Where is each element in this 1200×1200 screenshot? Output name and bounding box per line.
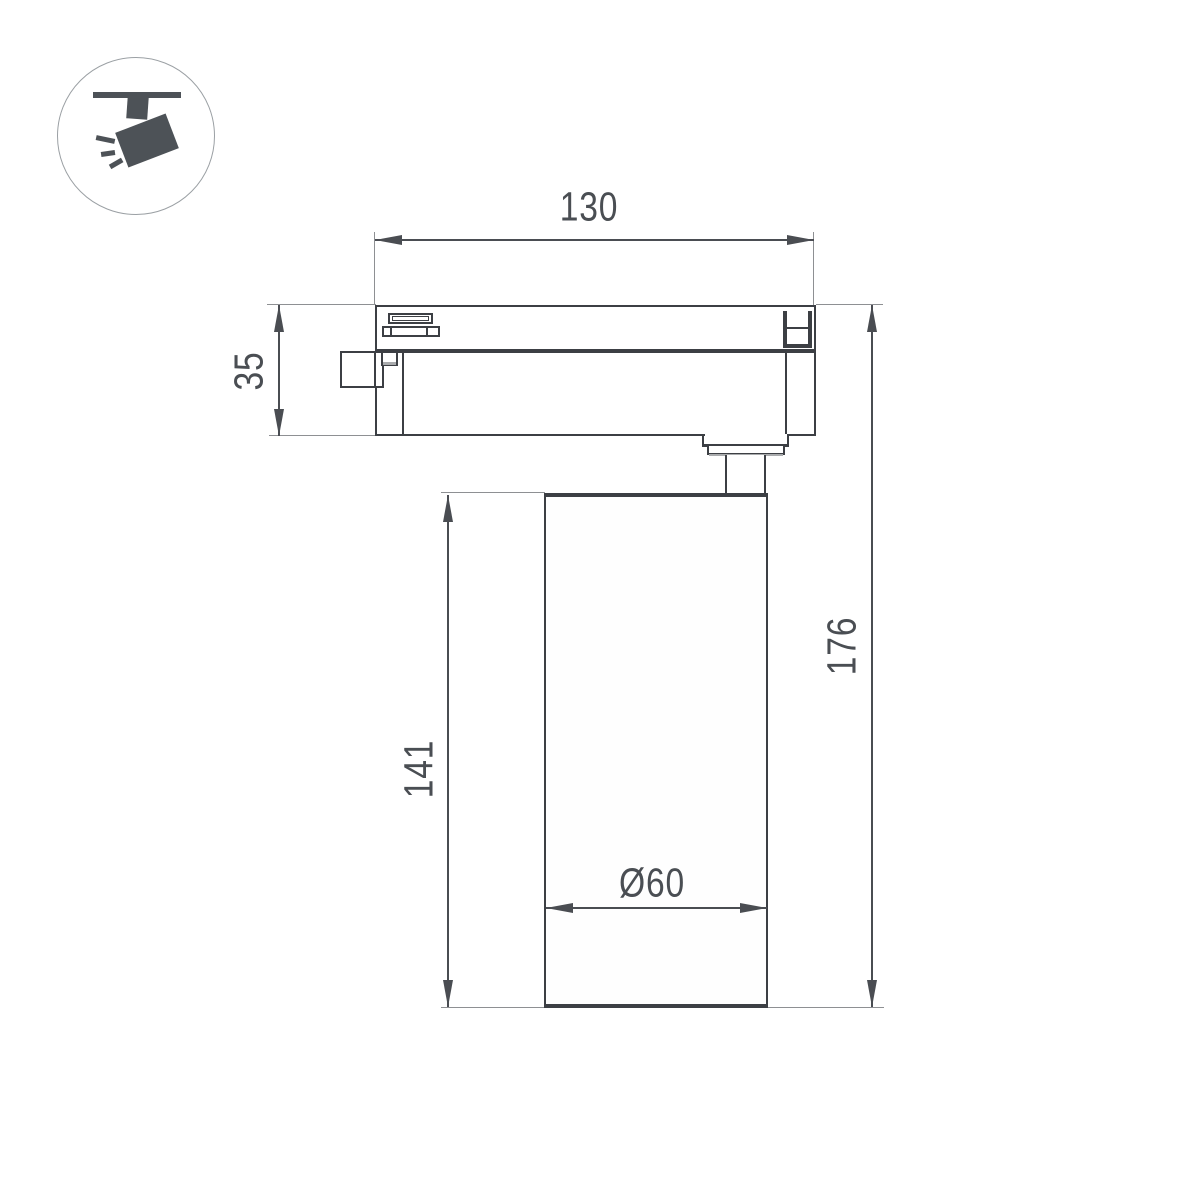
clip-middle-rung	[787, 327, 808, 329]
adapter-body-bottom-edge	[375, 434, 705, 436]
adapter-latch-box	[340, 351, 384, 388]
dim-arrowhead	[740, 903, 767, 913]
dim-label-total-height: 176	[822, 617, 863, 676]
adapter-neck-stem	[725, 455, 766, 494]
dim-label-adapter-width: 130	[560, 187, 619, 228]
dim-arrowhead	[867, 305, 877, 332]
dim-line-diameter	[546, 907, 767, 909]
icon-stem	[126, 95, 149, 119]
adapter-inner-line	[785, 353, 787, 434]
adapter-slot-2-divider	[426, 327, 428, 336]
dim-arrowhead	[443, 495, 453, 522]
extension-line	[269, 435, 376, 436]
adapter-slot-2-divider	[390, 327, 392, 336]
dim-arrowhead	[274, 409, 284, 436]
track-adapter-top	[375, 305, 816, 352]
technical-drawing-canvas: 130 35 141 176 Ø60	[0, 0, 1200, 1200]
adapter-latch-crossline	[374, 353, 376, 388]
dim-label-body-height: 141	[399, 740, 440, 799]
dim-arrowhead	[546, 903, 573, 913]
dim-line-total-height	[871, 305, 873, 1007]
dim-label-diameter: Ø60	[619, 863, 685, 904]
lamp-cylinder	[544, 493, 768, 1008]
dim-arrowhead	[867, 980, 877, 1007]
latch-step-shading	[383, 362, 396, 365]
adapter-clip	[783, 311, 812, 348]
clip-left-bar	[783, 311, 787, 348]
adapter-body-bottom-edge	[787, 434, 816, 436]
track-adapter-body	[375, 353, 816, 436]
dim-arrowhead	[787, 235, 814, 245]
adapter-inner-line	[402, 353, 404, 434]
dim-arrowhead	[274, 305, 284, 332]
dim-line-adapter-width	[375, 239, 814, 241]
dim-arrowhead	[443, 980, 453, 1007]
clip-bottom-bar	[783, 344, 812, 348]
adapter-slot-1-inner	[392, 316, 429, 321]
dim-label-adapter-height: 35	[229, 351, 270, 390]
extension-line	[441, 492, 545, 493]
dim-arrowhead	[375, 235, 402, 245]
clip-right-bar	[808, 311, 812, 348]
dim-line-body-height	[447, 495, 449, 1007]
